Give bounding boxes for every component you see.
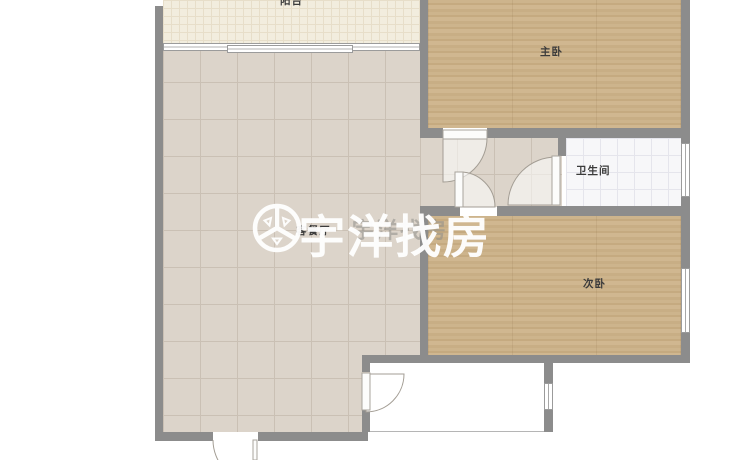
wall-porch-left-bottom [362, 410, 370, 432]
exterior-door-arc [213, 440, 256, 460]
watermark-logo-icon [249, 200, 305, 256]
wall-right-top [681, 0, 690, 145]
wall-bottom-left [155, 432, 213, 441]
wall-porch-left-top [362, 363, 370, 372]
watermark-brand-text: 宇洋找房 [299, 201, 491, 267]
master-bedroom-floor [428, 0, 681, 128]
wall-living-master-divider [420, 0, 428, 138]
bedroom2-window [681, 268, 690, 333]
wall-bedroom2-top-right [497, 206, 690, 216]
porch-window [544, 383, 553, 410]
balcony-floor: 阳台 [163, 0, 420, 45]
wall-bedroom2-bottom [362, 355, 690, 363]
balcony-sliding-door-inner [227, 45, 353, 53]
wall-master-bottom-right [487, 128, 690, 138]
bathroom-label: 卫生间 [576, 163, 611, 178]
hallway-floor [420, 137, 562, 207]
second-bedroom-label: 次卧 [583, 276, 606, 291]
exterior-door-leaf [253, 440, 257, 460]
bathroom-window [681, 143, 690, 197]
wall-bathroom-left [558, 138, 566, 156]
master-bedroom-label: 主卧 [540, 44, 563, 59]
wall-master-bottom-left [420, 128, 443, 138]
wall-left [155, 6, 163, 441]
wall-bedroom2-right-upper [681, 206, 690, 268]
balcony-label: 阳台 [280, 0, 303, 8]
wall-porch-right-top [544, 363, 553, 383]
floor-plan: 阳台 客餐厅 [0, 0, 750, 460]
wall-bedroom2-right-lower [681, 333, 690, 363]
wall-porch-right-bottom [544, 410, 553, 432]
wall-bottom-right [258, 432, 368, 441]
entry-porch-area [370, 363, 544, 432]
